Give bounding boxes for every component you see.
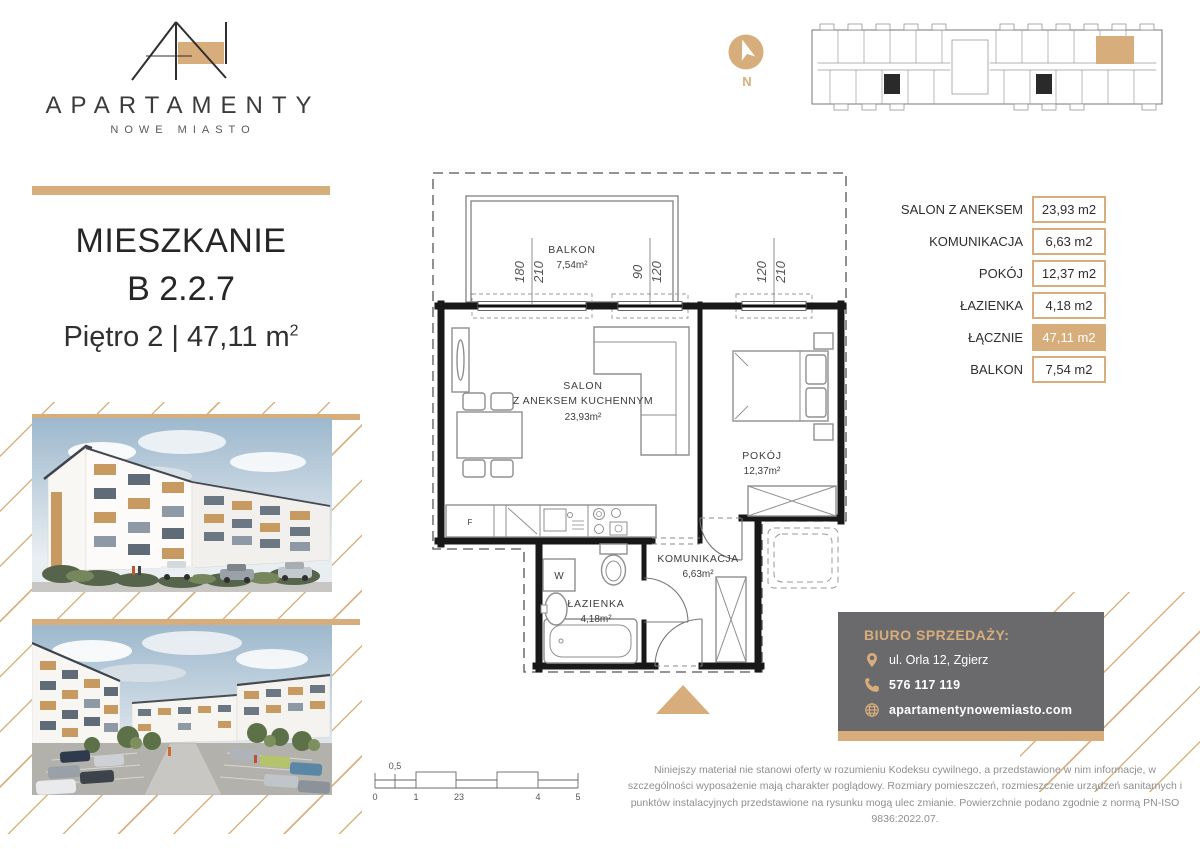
wardrobe-pokoj — [748, 486, 836, 516]
compass-north-label: N — [742, 74, 751, 89]
room-area-komunikacja: 6,63m² — [682, 569, 714, 580]
website-row: apartamentynowemiasto.com — [864, 702, 1094, 718]
row-label: BALKON — [884, 362, 1032, 377]
phone-row: 576 117 119 — [864, 677, 1094, 693]
wardrobe-komunikacja — [716, 577, 746, 662]
chair — [463, 393, 485, 410]
chair — [463, 460, 485, 477]
sales-office-heading: BIURO SPRZEDAŻY: — [864, 627, 1094, 643]
brand-logo-icon — [132, 22, 226, 80]
tv-cabinet — [452, 328, 469, 392]
bathroom-sink — [545, 593, 567, 625]
square-sup: 2 — [290, 322, 299, 339]
room-area-balkon: 7,54m² — [556, 260, 588, 271]
washer-label: W — [554, 571, 564, 582]
toilet — [600, 544, 627, 585]
photo-courtyard — [32, 625, 332, 795]
brand-subtitle: NOWE MIASTO — [40, 124, 326, 136]
brochure-page: N — [0, 0, 1200, 849]
row-label: ŁAZIENKA — [884, 298, 1032, 313]
area-table: SALON Z ANEKSEM 23,93 m2 KOMUNIKACJA 6,6… — [884, 196, 1106, 388]
sofa — [594, 327, 689, 455]
listing-title-block: MIESZKANIE B 2.2.7 Piętro 2 | 47,11 m2 — [30, 222, 332, 354]
dining-table — [457, 412, 522, 458]
brand-wordmark: APARTAMENTY — [40, 92, 326, 120]
listing-heading: MIESZKANIE — [30, 222, 332, 261]
globe-icon — [864, 702, 880, 718]
phone-text: 576 117 119 — [889, 678, 960, 692]
row-value: 6,63 m2 — [1032, 228, 1106, 255]
unit-number: B 2.2.7 — [30, 270, 332, 309]
furniture — [446, 327, 836, 663]
compass-icon: N — [729, 35, 764, 90]
room-label-lazienka: ŁAZIENKA — [567, 598, 624, 610]
dim-180: 180 — [512, 260, 527, 282]
pillow — [806, 388, 826, 417]
table-row: BALKON 7,54 m2 — [884, 356, 1106, 383]
scale-label-0: 0 — [372, 792, 377, 802]
website-text: apartamentynowemiasto.com — [889, 703, 1072, 717]
floor-area-text: Piętro 2 | 47,11 m — [63, 321, 289, 353]
room-label-balkon: BALKON — [548, 244, 595, 256]
room-area-lazienka: 4,18m² — [580, 614, 612, 625]
row-value: 12,37 m2 — [1032, 260, 1106, 287]
chair — [491, 460, 513, 477]
sales-office-box: BIURO SPRZEDAŻY: ul. Orla 12, Zgierz 576… — [838, 612, 1104, 731]
dim-210a: 210 — [531, 260, 546, 283]
scale-label-05: 0,5 — [389, 761, 402, 771]
room-label-salon: SALON — [563, 380, 603, 392]
row-label: POKÓJ — [884, 266, 1032, 281]
pillow — [806, 355, 826, 384]
room-label-komunikacja: KOMUNIKACJA — [657, 553, 738, 565]
dim-120b: 120 — [754, 260, 769, 282]
neighbour-balcony — [768, 528, 838, 588]
site-plan — [812, 24, 1162, 110]
nightstand — [814, 424, 833, 440]
table-row: KOMUNIKACJA 6,63 m2 — [884, 228, 1106, 255]
windows — [478, 302, 806, 311]
scale-label-5: 5 — [575, 792, 580, 802]
row-label: ŁĄCZNIE — [884, 330, 1032, 345]
dim-120a: 120 — [649, 260, 664, 282]
fridge-label: F — [468, 518, 473, 527]
scale-bar: 0,5 0 1 23 4 5 — [372, 761, 580, 802]
floor-and-area: Piętro 2 | 47,11 m2 — [30, 321, 332, 354]
dim-90: 90 — [630, 264, 645, 279]
table-row: POKÓJ 12,37 m2 — [884, 260, 1106, 287]
address-text: ul. Orla 12, Zgierz — [889, 653, 988, 667]
table-row-total: ŁĄCZNIE 47,11 m2 — [884, 324, 1106, 351]
dim-210b: 210 — [773, 260, 788, 283]
chair — [491, 393, 513, 410]
row-value: 4,18 m2 — [1032, 292, 1106, 319]
table-row: SALON Z ANEKSEM 23,93 m2 — [884, 196, 1106, 223]
nightstand — [814, 333, 833, 349]
row-value: 23,93 m2 — [1032, 196, 1106, 223]
gold-bar-contact — [838, 731, 1104, 741]
photo-building-exterior — [32, 418, 332, 592]
room-label-pokoj: POKÓJ — [742, 449, 782, 462]
table-row: ŁAZIENKA 4,18 m2 — [884, 292, 1106, 319]
floor-plan: 180 210 90 120 120 210 — [433, 173, 846, 714]
phone-icon — [864, 677, 880, 693]
scale-label-23: 23 — [454, 792, 464, 802]
scale-label-4: 4 — [535, 792, 540, 802]
row-label: SALON Z ANEKSEM — [884, 202, 1032, 217]
row-value: 7,54 m2 — [1032, 356, 1106, 383]
room-area-pokoj: 12,37m² — [744, 466, 781, 477]
kitchen-sink — [544, 509, 566, 531]
room-area-salon: 23,93m² — [565, 412, 602, 423]
site-plan-highlighted-unit — [1096, 36, 1134, 64]
gold-divider — [32, 186, 330, 195]
legal-disclaimer: Niniejszy materiał nie stanowi oferty w … — [622, 762, 1188, 827]
scale-label-1: 1 — [413, 792, 418, 802]
row-value: 47,11 m2 — [1032, 324, 1106, 351]
address-row: ul. Orla 12, Zgierz — [864, 652, 1094, 668]
room-label-salon2: Z ANEKSEM KUCHENNYM — [513, 395, 653, 407]
row-label: KOMUNIKACJA — [884, 234, 1032, 249]
location-pin-icon — [864, 652, 880, 668]
entrance-arrow — [656, 685, 710, 714]
